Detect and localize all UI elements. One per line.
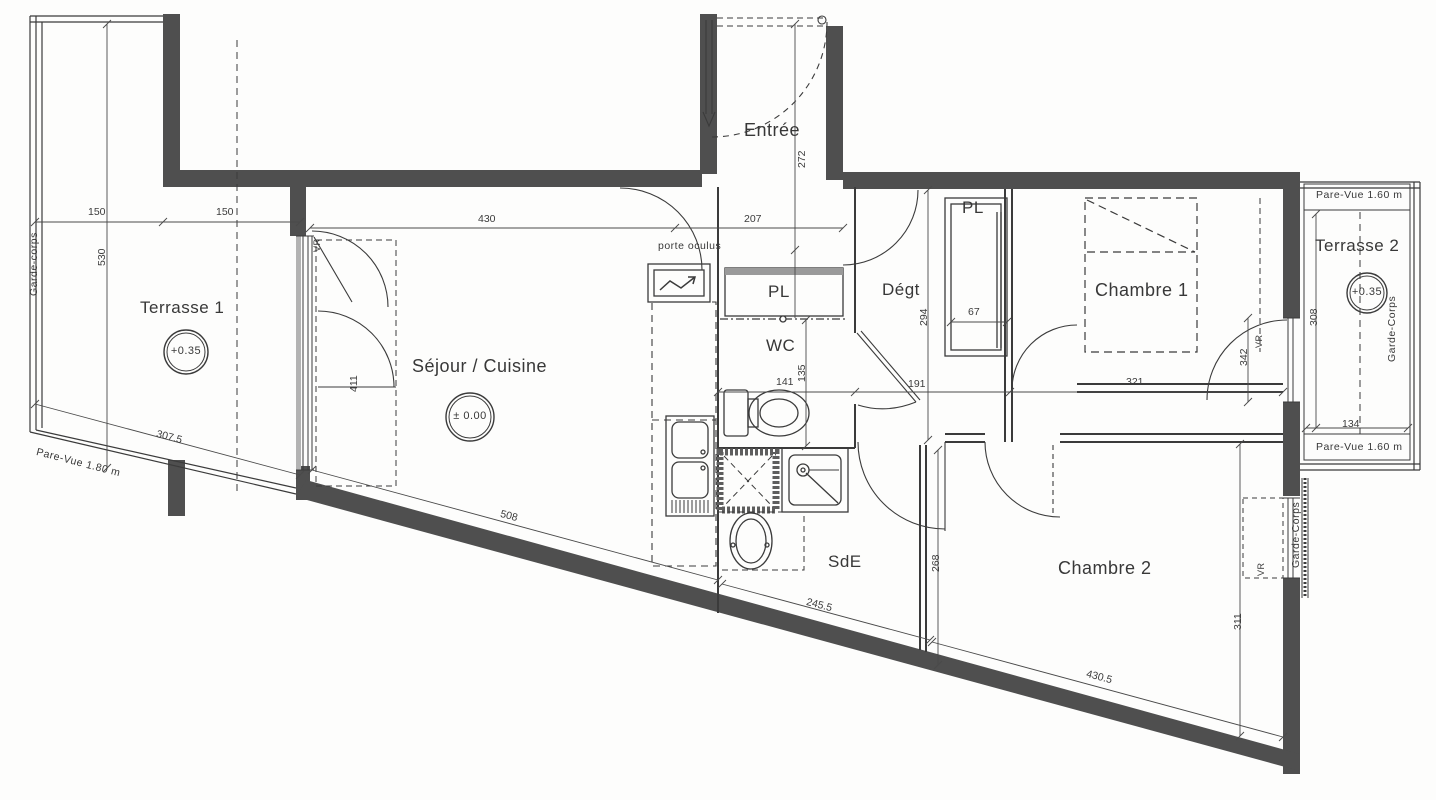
dim-t1-length: 530 [96, 248, 108, 266]
garde-corps-terrasse1-label: Garde-corps [28, 232, 40, 296]
vr-sejour-label: VR [312, 238, 322, 252]
dim-chambre1-width: 321 [1126, 376, 1144, 388]
dim-wc-width: 141 [776, 376, 794, 388]
room-label-pl2: PL [962, 198, 984, 218]
garde-corps-terrasse2-label: Garde-Corps [1386, 296, 1398, 362]
dim-sejour-window: 411 [348, 375, 360, 392]
dim-t2-width: 134 [1342, 418, 1360, 430]
room-label-wc: WC [766, 336, 795, 356]
porte-oculus-label: porte oculus [658, 240, 721, 252]
dim-t2-length: 308 [1308, 308, 1320, 326]
dim-chambre2-window: 311 [1232, 613, 1244, 630]
floor-plan: Entrée Terrasse 1 Séjour / Cuisine PL WC… [0, 0, 1436, 800]
room-label-sejour: Séjour / Cuisine [412, 356, 547, 377]
dim-entree-top: 207 [744, 213, 762, 225]
room-label-terrasse1: Terrasse 1 [140, 298, 224, 318]
pare-vue-terrasse2-bottom-label: Pare-Vue 1.60 m [1316, 441, 1403, 453]
dim-wc-depth: 135 [796, 364, 808, 382]
dim-chambre1-window: 342 [1238, 348, 1250, 366]
dim-pl2-width: 67 [968, 306, 980, 318]
room-label-pl1: PL [768, 282, 790, 302]
room-label-degt: Dégt [882, 280, 920, 300]
vr-chambre1-label: VR [1254, 334, 1264, 348]
room-label-chambre2: Chambre 2 [1058, 558, 1152, 579]
vr-chambre2-label: VR [1256, 562, 1266, 576]
room-label-terrasse2: Terrasse 2 [1315, 236, 1399, 256]
level-terrasse1: +0.35 [163, 345, 209, 357]
dim-degt-depth: 294 [918, 308, 930, 326]
dim-degt-width: 191 [908, 378, 926, 390]
dim-sejour-top: 430 [478, 213, 496, 225]
dim-t1-width-a: 150 [88, 206, 106, 218]
walls [163, 14, 1300, 774]
room-label-chambre1: Chambre 1 [1095, 280, 1189, 301]
terraces [30, 16, 1420, 494]
level-sejour: ± 0.00 [447, 410, 493, 422]
floorplan-drawing [0, 0, 1436, 800]
level-terrasse2: +0.35 [1344, 286, 1390, 298]
dimension-lines [31, 20, 1412, 741]
room-label-entree: Entrée [744, 120, 800, 141]
dim-sde-wall: 268 [930, 554, 942, 572]
dim-t1-width-b: 150 [216, 206, 234, 218]
room-label-sde: SdE [828, 552, 862, 572]
pare-vue-terrasse2-top-label: Pare-Vue 1.60 m [1316, 189, 1403, 201]
dim-entree-depth: 272 [796, 150, 808, 168]
garde-corps-chambre2-label: Garde-Corps [1290, 502, 1302, 568]
